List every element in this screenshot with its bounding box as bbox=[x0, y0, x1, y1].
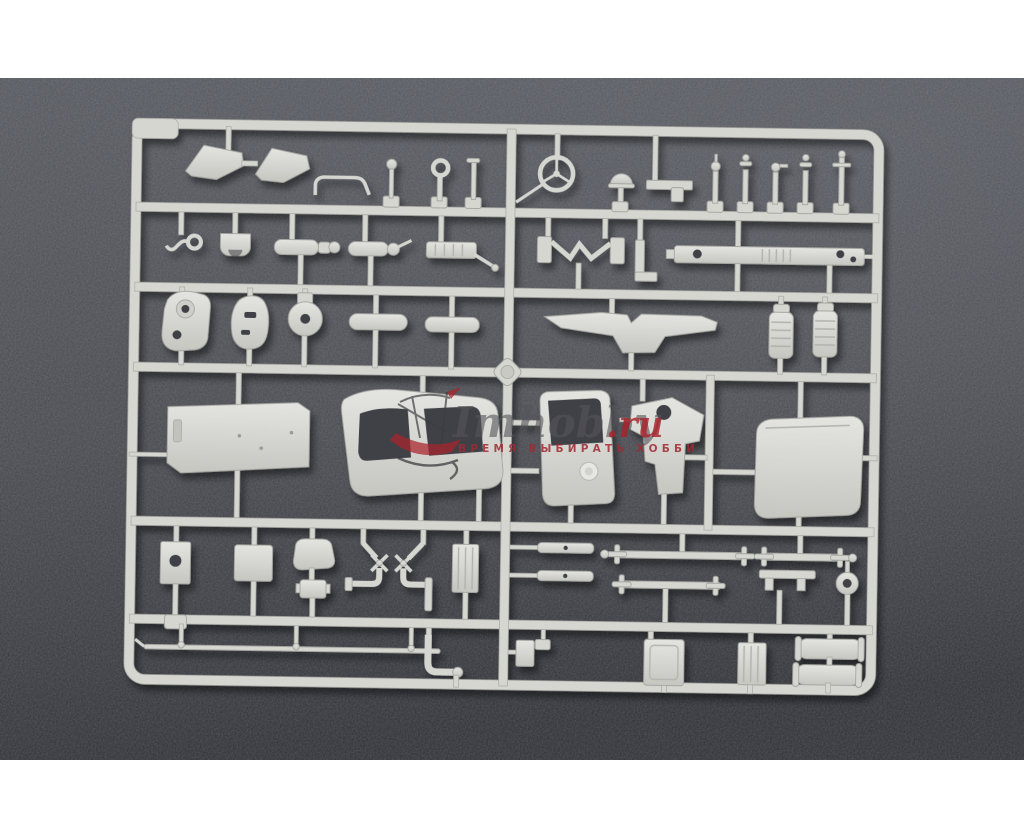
part-tank-bracket-box bbox=[643, 631, 684, 693]
watermark-subtitle: ВРЕМЯ ВЫБИРАТЬ ХОББИ bbox=[458, 443, 699, 455]
watermark-suffix: .ru bbox=[606, 404, 664, 446]
photo-area: Imhobby .ru ВРЕМЯ ВЫБИРАТЬ ХОББИ bbox=[0, 78, 1024, 760]
corner-tab bbox=[132, 118, 178, 139]
product-photo-page: Imhobby .ru ВРЕМЯ ВЫБИРАТЬ ХОББИ bbox=[0, 0, 1024, 838]
